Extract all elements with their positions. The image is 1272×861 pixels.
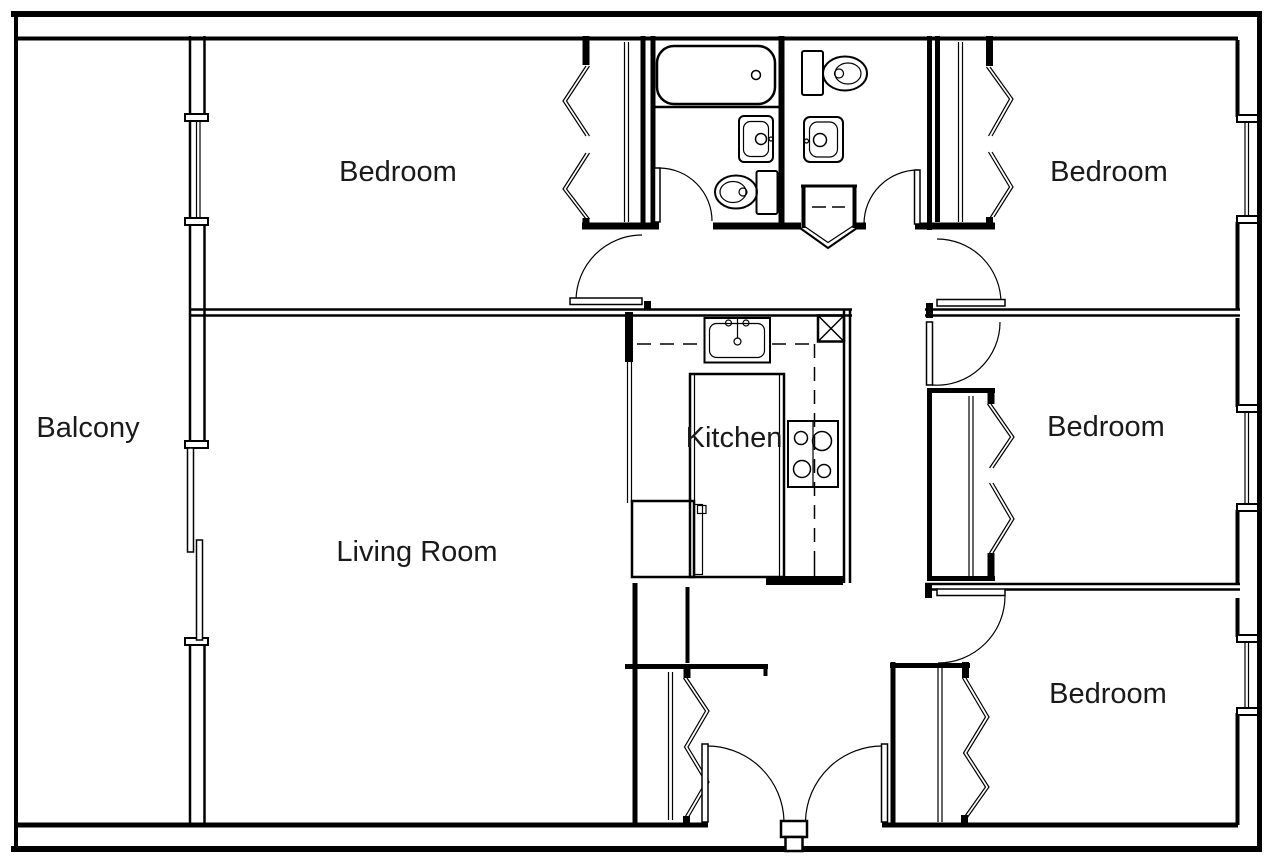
window-bedroom-top-right [1237, 115, 1258, 223]
kitchen-sink [705, 317, 771, 363]
entry-double-door [702, 744, 888, 851]
door-bathroom-main [655, 168, 713, 222]
refrigerator [632, 501, 706, 577]
bathroom-main-sink [739, 116, 773, 162]
counter-return [766, 576, 843, 585]
living-room-label: Living Room [336, 536, 497, 568]
bathroom-main-toilet [715, 171, 778, 214]
floor-plan-drawing: Balcony Bedroom Bedroom Bedroom Bedroom … [0, 0, 1272, 861]
window-bedroom-top-left [185, 114, 208, 225]
door-bedroom-top-right [937, 239, 1005, 306]
balcony-label: Balcony [36, 412, 140, 444]
door-bathroom-second [864, 170, 920, 224]
entry-door-center-post [781, 821, 807, 837]
window-bedroom-middle-right [1237, 405, 1258, 511]
door-bedroom-top-left [570, 235, 642, 305]
bedroom-top-left-label: Bedroom [339, 156, 457, 188]
bedroom-bottom-right-label: Bedroom [1049, 678, 1167, 710]
closet-bedroom-bottom-right [938, 662, 989, 823]
door-bedroom-middle-right [927, 322, 1001, 385]
corner-shower [800, 185, 857, 248]
closet-bedroom-middle-right [927, 390, 1014, 579]
door-bedroom-bottom-right [937, 589, 1005, 663]
stove-cooktop [788, 421, 838, 487]
vent-shaft-box [818, 316, 844, 342]
bedroom-top-right-label: Bedroom [1050, 156, 1168, 188]
closet-bedroom-top-right [959, 36, 1014, 226]
bedroom-middle-right-label: Bedroom [1047, 411, 1165, 443]
kitchen-counters [637, 344, 843, 585]
bathroom-second-sink [804, 117, 843, 162]
floor-plan: Balcony Bedroom Bedroom Bedroom Bedroom … [0, 0, 1272, 861]
kitchen-peninsula [690, 374, 784, 577]
window-bedroom-bottom-right [1237, 635, 1258, 715]
bathroom-second-toilet [802, 51, 867, 95]
closet-bedroom-top-left [563, 36, 629, 226]
bathtub [653, 46, 779, 107]
sliding-door-balcony [185, 441, 208, 645]
kitchen-label: Kitchen [686, 422, 783, 454]
